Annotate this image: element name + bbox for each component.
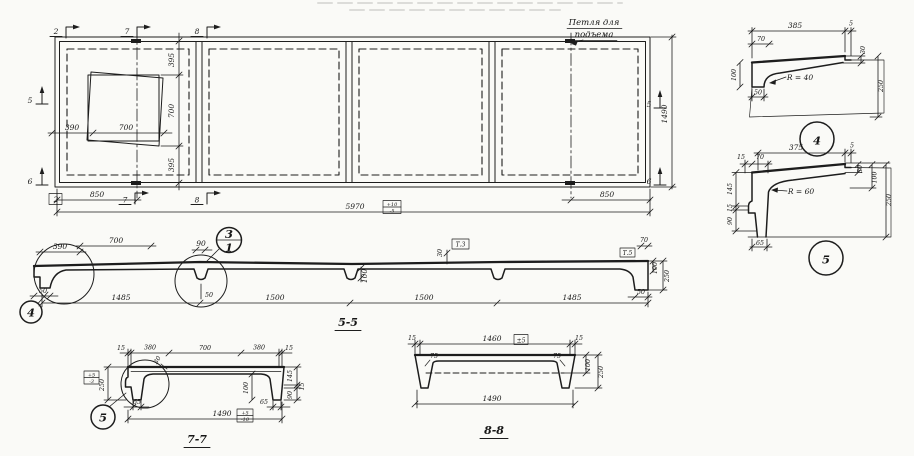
dim-30: 30: [857, 165, 864, 173]
marker-label: 7: [125, 27, 130, 36]
section-marker-5-left: 5: [28, 86, 48, 105]
dim-1490: 1490: [660, 104, 669, 123]
dim-90: 90: [287, 391, 294, 399]
lifting-loop-mark-tl: [131, 39, 141, 43]
tol-250-minus: -3: [89, 379, 94, 385]
section-profile: [34, 261, 648, 290]
section-8-8-title: 8-8: [484, 424, 504, 437]
dim-15-right: 15: [285, 345, 293, 352]
section-profile: [126, 367, 285, 400]
dim-395-top: 395: [167, 53, 176, 68]
section-top-surface: [34, 261, 648, 266]
dim-50-right: 50: [637, 289, 645, 296]
detail-5: 375 5 15 70 145 15 90 65 30 100 250 R = …: [727, 143, 893, 276]
tol-1490-plus: +5: [241, 411, 248, 417]
dim-15-left: 15: [408, 335, 416, 342]
dim-lines: [408, 340, 602, 408]
callout-3-label: 3: [225, 227, 233, 241]
detail-4-number: 4: [813, 134, 821, 148]
section-7-7-title: 7-7: [187, 433, 207, 446]
lifting-loop-mark-bl: [131, 181, 141, 185]
dim-1485-1: 1485: [111, 293, 130, 302]
section-marker-8-top: 8: [191, 25, 221, 38]
dim-70: 70: [756, 154, 764, 161]
section-marker-2-bottom: 2: [49, 194, 62, 205]
marker-label: 5: [647, 100, 652, 109]
faded-header-remnant: [318, 3, 622, 10]
section-5-5-title: 5-5: [338, 316, 358, 329]
dim-line-bottom-run: [39, 292, 651, 307]
callout-4-label: 4: [27, 306, 35, 320]
dim-5970: 5970: [345, 202, 364, 211]
dim-1490: 1490: [212, 409, 231, 418]
detail-circle-left-end: [34, 244, 94, 304]
dim-5: 5: [849, 21, 853, 28]
dim-100: 100: [731, 69, 738, 81]
detail-break-lines: [748, 168, 891, 238]
marker-label: 8: [195, 27, 200, 36]
section-5-5: 390 700 90 50 50 4 3 1 100 30 70 100 250…: [20, 227, 671, 331]
dim-70: 70: [640, 237, 648, 244]
detail-5-number: 5: [822, 253, 830, 267]
tol-5970-plus: +10: [387, 202, 398, 208]
dim-100: 100: [243, 382, 250, 394]
dim-145: 145: [287, 370, 294, 382]
dim-5: 5: [850, 143, 854, 150]
dim-100-mid: 100: [360, 269, 369, 284]
section-marker-2-top: 2: [50, 25, 80, 38]
section-7-7: 15 380 700 380 15 30 250 +5 -3 145 15 90…: [84, 345, 306, 448]
dim-70: 70: [757, 36, 765, 43]
finish-box-t3-label: Т.3: [456, 242, 466, 249]
marker-label: 5: [28, 96, 33, 105]
section-marker-7-bottom: 7: [119, 191, 149, 205]
blueprint-sheet: 390 700 395 700 395 850 850 5970 +10 -5 …: [0, 0, 914, 456]
tol-5970-minus: -5: [390, 209, 395, 215]
lifting-loop-label-line2: подъема: [575, 30, 614, 40]
dim-15-right: 15: [575, 335, 583, 342]
radius-note: R = 60: [787, 187, 814, 196]
angle-75-right-leader: [560, 360, 565, 366]
radius-note: R = 40: [786, 73, 813, 82]
opening-outline-skewed: [87, 72, 163, 146]
rib-divider-lines: [196, 42, 495, 182]
dim-250-right: 250: [664, 270, 671, 283]
detail-top-surface: [752, 56, 845, 63]
radius-leader-arrow: [769, 80, 776, 85]
section-marker-8-bottom: 8: [191, 191, 221, 205]
dim-50-mid: 50: [205, 292, 213, 299]
radius-leader-arrow: [771, 188, 778, 193]
dim-1490: 1490: [482, 394, 501, 403]
dim-700: 700: [109, 236, 124, 245]
dim-1500-2: 1500: [414, 293, 433, 302]
angle-75-left-leader: [425, 360, 430, 366]
dim-1500-1: 1500: [265, 293, 284, 302]
angle-75-left: 75: [430, 353, 438, 360]
dim-1485-2: 1485: [562, 293, 581, 302]
plan-view: 390 700 395 700 395 850 850 5970 +10 -5 …: [28, 18, 676, 216]
marker-label: 7: [123, 196, 128, 205]
marker-label: 6: [28, 177, 33, 186]
tol-1490-minus: -10: [241, 417, 250, 423]
dim-15-left: 15: [727, 204, 734, 212]
dim-30: 30: [437, 249, 444, 257]
callout-1-label: 1: [225, 241, 233, 255]
recess-dashed-panel-3: [359, 49, 482, 175]
dim-390: 390: [53, 242, 68, 251]
dim-250: 250: [878, 80, 885, 93]
marker-label: 8: [195, 196, 200, 205]
dim-100: 100: [872, 171, 879, 183]
dim-250: 250: [99, 379, 106, 392]
callout-3-1-leader: [207, 249, 219, 261]
section-marker-7-top: 7: [121, 25, 151, 38]
tol-250-plus: +5: [88, 373, 95, 379]
dim-250: 250: [886, 194, 893, 207]
detail-break-lines: [750, 60, 885, 117]
dim-65-right: 65: [260, 399, 268, 406]
dim-250: 250: [598, 366, 605, 379]
detail-outline: [749, 164, 852, 237]
tol-1460: ±5: [517, 338, 526, 345]
marker-label: 6: [647, 177, 652, 186]
dim-375: 375: [789, 143, 804, 152]
dim-850-right: 850: [600, 190, 615, 199]
section-marker-6-left: 6: [28, 167, 48, 186]
dim-390: 390: [65, 123, 80, 132]
dim-lines: [732, 149, 890, 251]
dim-395-bot: 395: [167, 158, 176, 173]
recess-dashed-panel-4: [502, 49, 638, 175]
dim-lines-left: [30, 243, 212, 299]
dim-100: 100: [585, 359, 592, 371]
panel-working-drawing: 390 700 395 700 395 850 850 5970 +10 -5 …: [0, 0, 914, 456]
lifting-loop-mark-tr: [565, 39, 575, 43]
dim-15-top: 15: [737, 154, 745, 161]
finish-box-t5-label: Т.5: [623, 250, 633, 257]
dim-145: 145: [727, 183, 734, 195]
dim-90: 90: [727, 217, 734, 225]
dim-100-right: 100: [652, 262, 659, 274]
angle-75-right: 75: [553, 353, 561, 360]
dim-700-h: 700: [119, 123, 134, 132]
dim-15-edge: 15: [299, 382, 306, 390]
marker-label: 2: [53, 195, 59, 204]
section-profile: [415, 355, 575, 388]
dim-1460: 1460: [482, 334, 501, 343]
dim-850-left: 850: [90, 190, 105, 199]
dim-700: 700: [199, 345, 211, 352]
detail-4: 385 5 70 100 50 30 250 R = 40 4: [731, 21, 885, 157]
dim-90: 90: [196, 239, 206, 248]
callout-5-label: 5: [99, 411, 107, 425]
section-8-8: 15 1460 ±5 15 75 75 100 250 1490 8-8: [408, 334, 605, 439]
dim-380-right: 380: [253, 345, 265, 352]
dim-lines-mid-right: [358, 243, 667, 300]
lifting-loop-mark-br: [565, 181, 575, 185]
marker-label: 2: [53, 27, 59, 36]
detail-top-surface: [752, 164, 845, 173]
dim-50: 50: [754, 90, 762, 97]
dim-700-v: 700: [167, 104, 176, 119]
dim-380-left: 380: [144, 345, 156, 352]
lifting-loop-label-line1: Петля для: [568, 18, 620, 28]
recess-dashed-panel-2: [209, 49, 339, 175]
dim-65: 65: [756, 240, 764, 247]
dim-30: 30: [860, 46, 867, 54]
dim-385: 385: [788, 21, 803, 30]
dim-15-left: 15: [117, 345, 125, 352]
